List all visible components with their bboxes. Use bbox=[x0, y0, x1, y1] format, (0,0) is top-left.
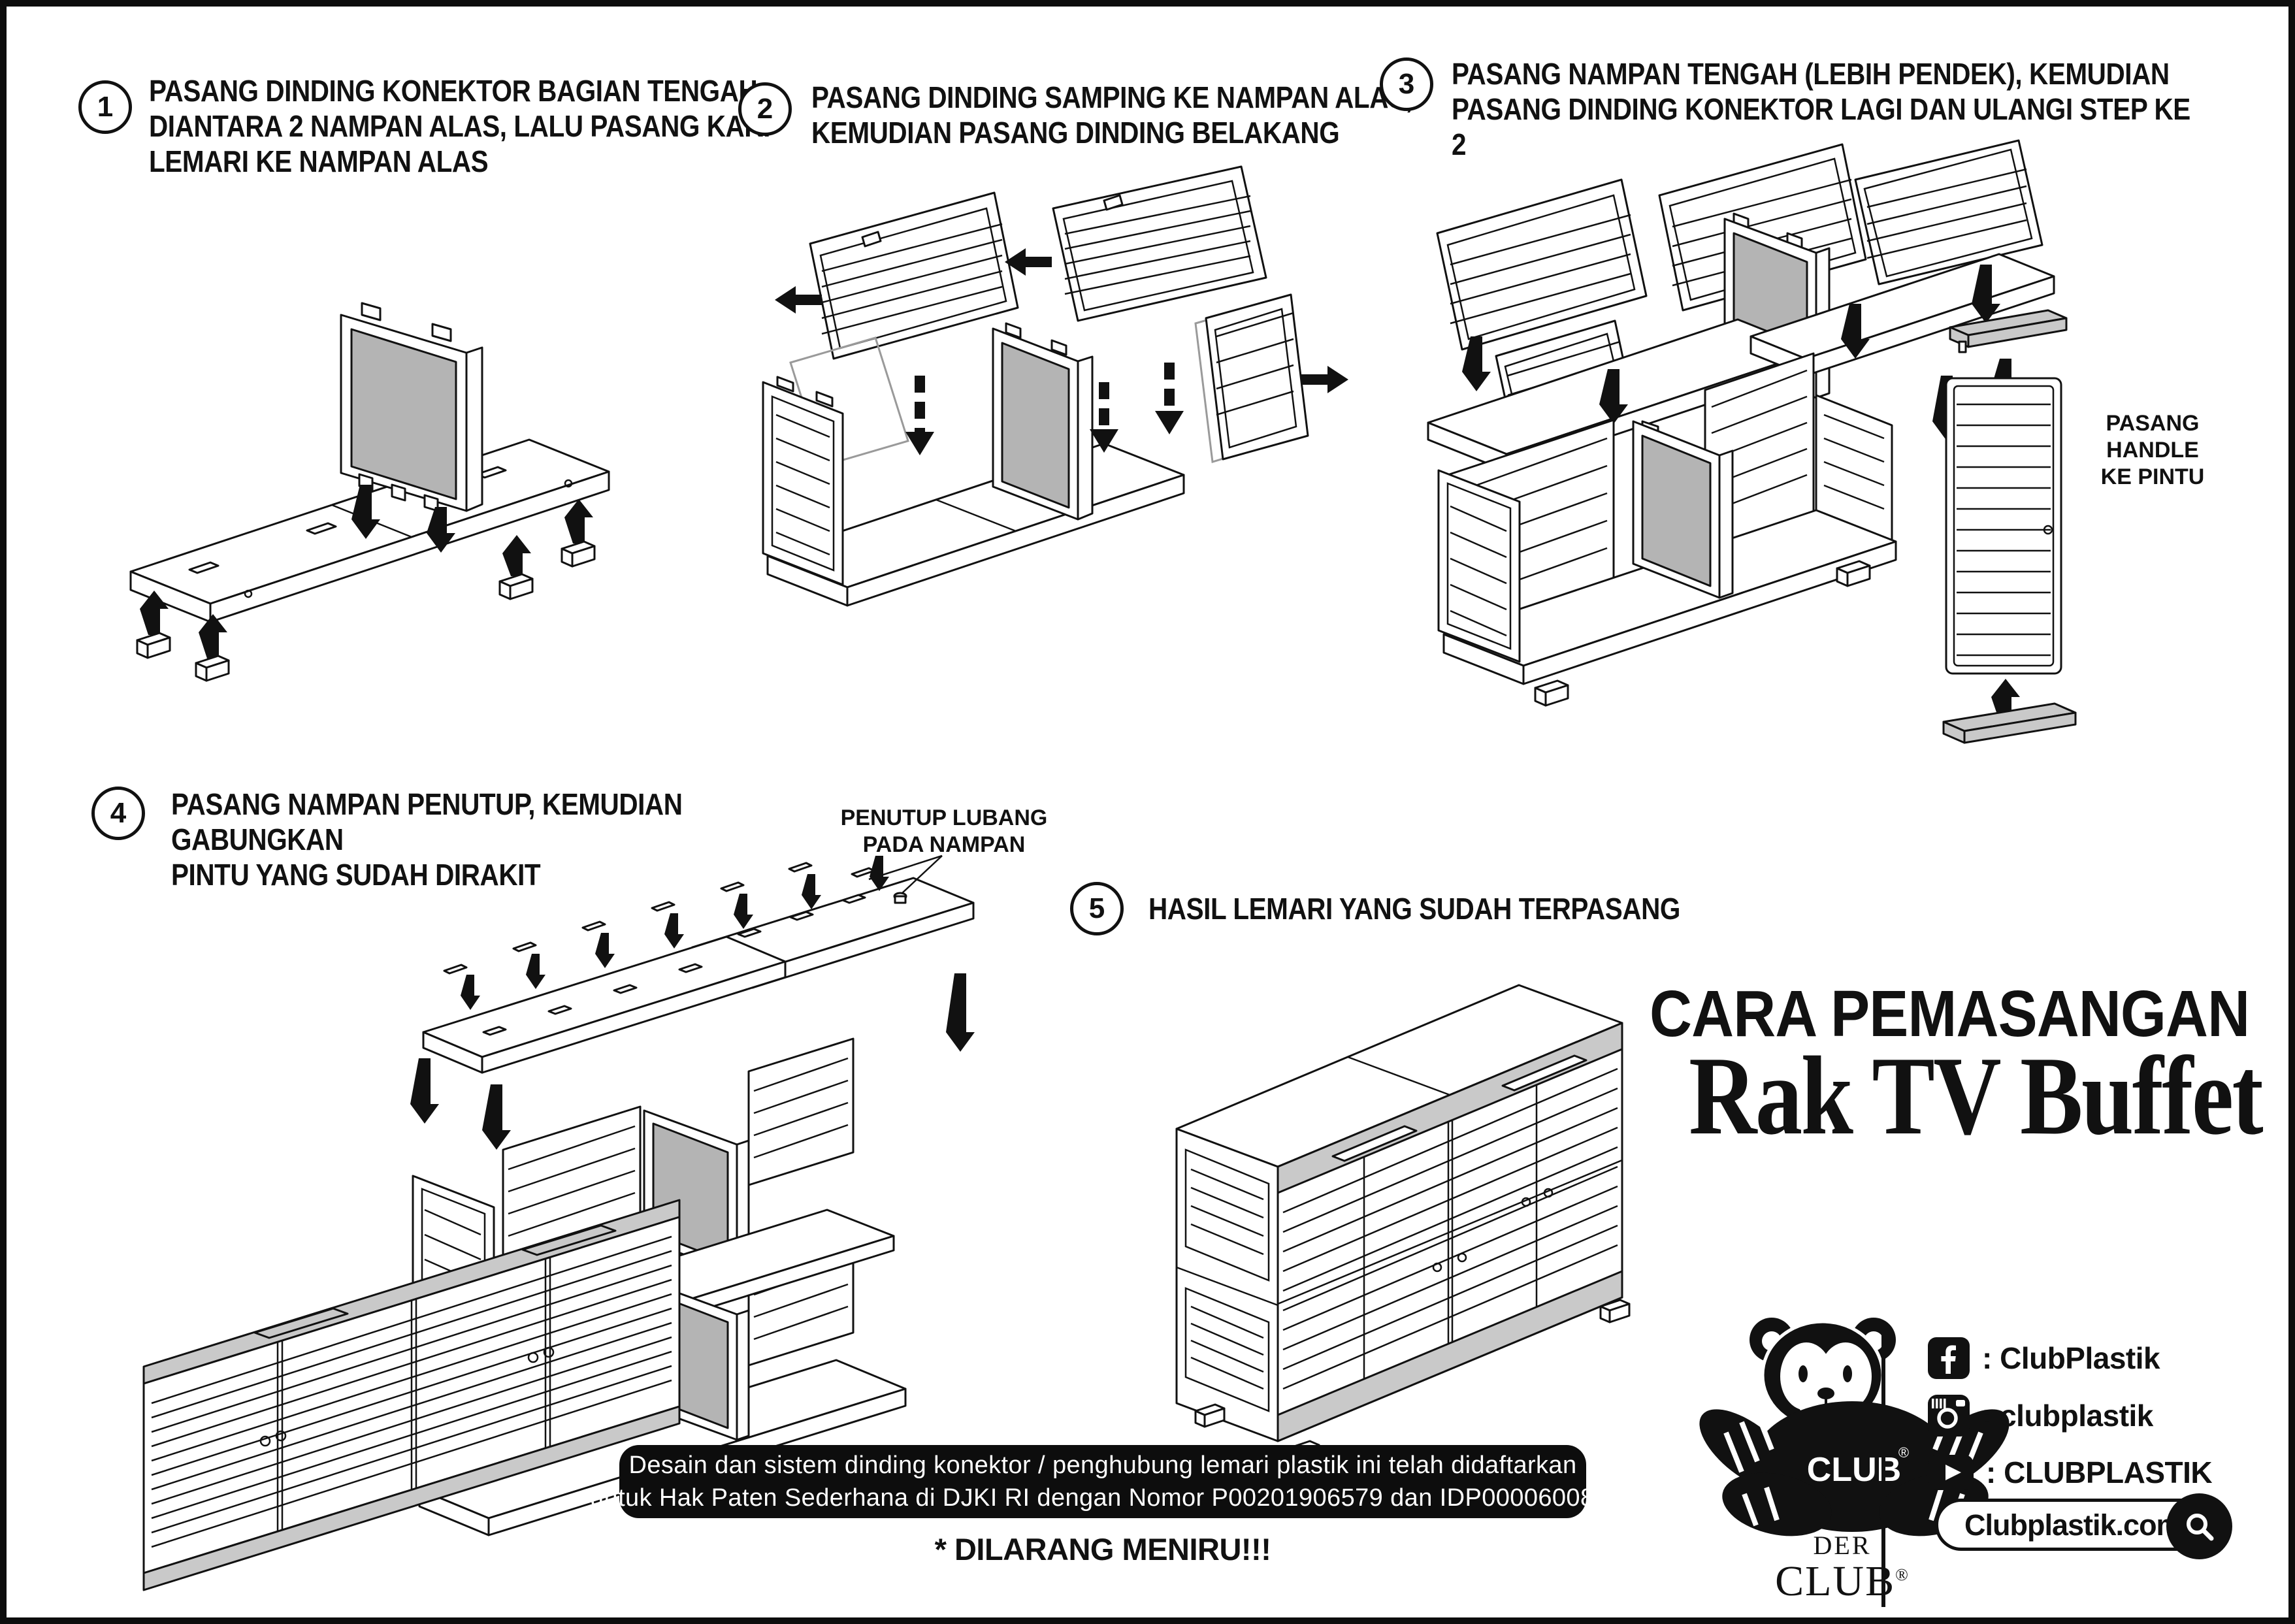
brand-club-text: CLUB bbox=[1775, 1557, 1895, 1605]
step-5-number: 5 bbox=[1070, 882, 1124, 935]
step-1-number: 1 bbox=[78, 80, 132, 134]
step-4-num-label: 4 bbox=[110, 799, 126, 828]
step-1-diagram bbox=[111, 274, 686, 653]
step-5-text: HASIL LEMARI YANG SUDAH TERPASANG bbox=[1148, 891, 1781, 926]
social-facebook-row: : ClubPlastik bbox=[1927, 1337, 2160, 1380]
step-4-text: PASANG NAMPAN PENUTUP, KEMUDIAN GABUNGKA… bbox=[171, 787, 861, 892]
shirt-logo-text: CLUB bbox=[1807, 1451, 1901, 1489]
brand-der: DER bbox=[1731, 1533, 1953, 1559]
step-2-number: 2 bbox=[738, 82, 792, 136]
step-4-number: 4 bbox=[91, 787, 145, 840]
youtube-icon bbox=[1927, 1454, 1974, 1491]
side-wall-right bbox=[1196, 295, 1348, 462]
website-search-pill[interactable]: Clubplastik.com bbox=[1935, 1499, 2230, 1551]
no-copy-warning: * DILARANG MENIRU!!! bbox=[619, 1534, 1586, 1565]
cabinet-door bbox=[1946, 378, 2061, 674]
step-2-num-label: 2 bbox=[757, 95, 773, 123]
cover-trays bbox=[423, 878, 973, 1073]
step-5-num-label: 5 bbox=[1089, 894, 1105, 923]
website-url[interactable]: Clubplastik.com bbox=[1938, 1510, 2182, 1540]
patent-line-2: untuk Hak Paten Sederhana di DJKI RI den… bbox=[590, 1482, 1616, 1514]
connector-wall bbox=[993, 323, 1092, 519]
door-assembly bbox=[144, 1200, 679, 1590]
product-name: Rak TV Buffet bbox=[1689, 1040, 2262, 1152]
step-2-diagram bbox=[712, 167, 1352, 663]
search-icon bbox=[2180, 1507, 2219, 1546]
patent-notice: Desain dan sistem dinding konektor / pen… bbox=[619, 1445, 1586, 1518]
instagram-icon bbox=[1927, 1394, 1970, 1437]
handle-callout: PASANG HANDLE KE PINTU bbox=[2058, 410, 2247, 491]
door-handle bbox=[1950, 310, 2066, 352]
brand-wordmark: DER CLUB® bbox=[1731, 1533, 1953, 1604]
step-1-text: PASANG DINDING KONEKTOR BAGIAN TENGAH DI… bbox=[149, 73, 839, 179]
patent-line-1: Desain dan sistem dinding konektor / pen… bbox=[628, 1449, 1576, 1482]
brand-club: CLUB® bbox=[1731, 1559, 1953, 1604]
cabinet-left-side bbox=[1177, 1129, 1278, 1441]
facebook-icon bbox=[1927, 1337, 1970, 1380]
hole-cover-callout: PENUTUP LUBANG PADA NAMPAN bbox=[836, 805, 1052, 858]
door-handle-diagram bbox=[1930, 304, 2094, 755]
step-3-text: PASANG NAMPAN TENGAH (LEBIH PENDEK), KEM… bbox=[1452, 56, 2199, 162]
social-instagram-row: : clubplastik bbox=[1927, 1394, 2153, 1437]
step-5-diagram bbox=[1104, 954, 1679, 1489]
step-3-num-label: 3 bbox=[1399, 70, 1414, 99]
vertical-divider bbox=[1881, 1333, 1885, 1607]
instagram-handle: : clubplastik bbox=[1982, 1401, 2153, 1431]
connector-wall bbox=[341, 303, 482, 511]
shirt-registered-mark: ® bbox=[1898, 1444, 1909, 1461]
facebook-handle: : ClubPlastik bbox=[1982, 1343, 2160, 1373]
search-button[interactable] bbox=[2166, 1493, 2232, 1559]
registered-mark: ® bbox=[1895, 1565, 1910, 1584]
step-3-number: 3 bbox=[1380, 57, 1433, 111]
youtube-handle: : CLUBPLASTIK bbox=[1986, 1457, 2212, 1487]
social-youtube-row: : CLUBPLASTIK bbox=[1927, 1454, 2212, 1491]
step-1-num-label: 1 bbox=[97, 93, 113, 122]
instruction-sheet: 1 PASANG DINDING KONEKTOR BAGIAN TENGAH … bbox=[0, 0, 2295, 1624]
